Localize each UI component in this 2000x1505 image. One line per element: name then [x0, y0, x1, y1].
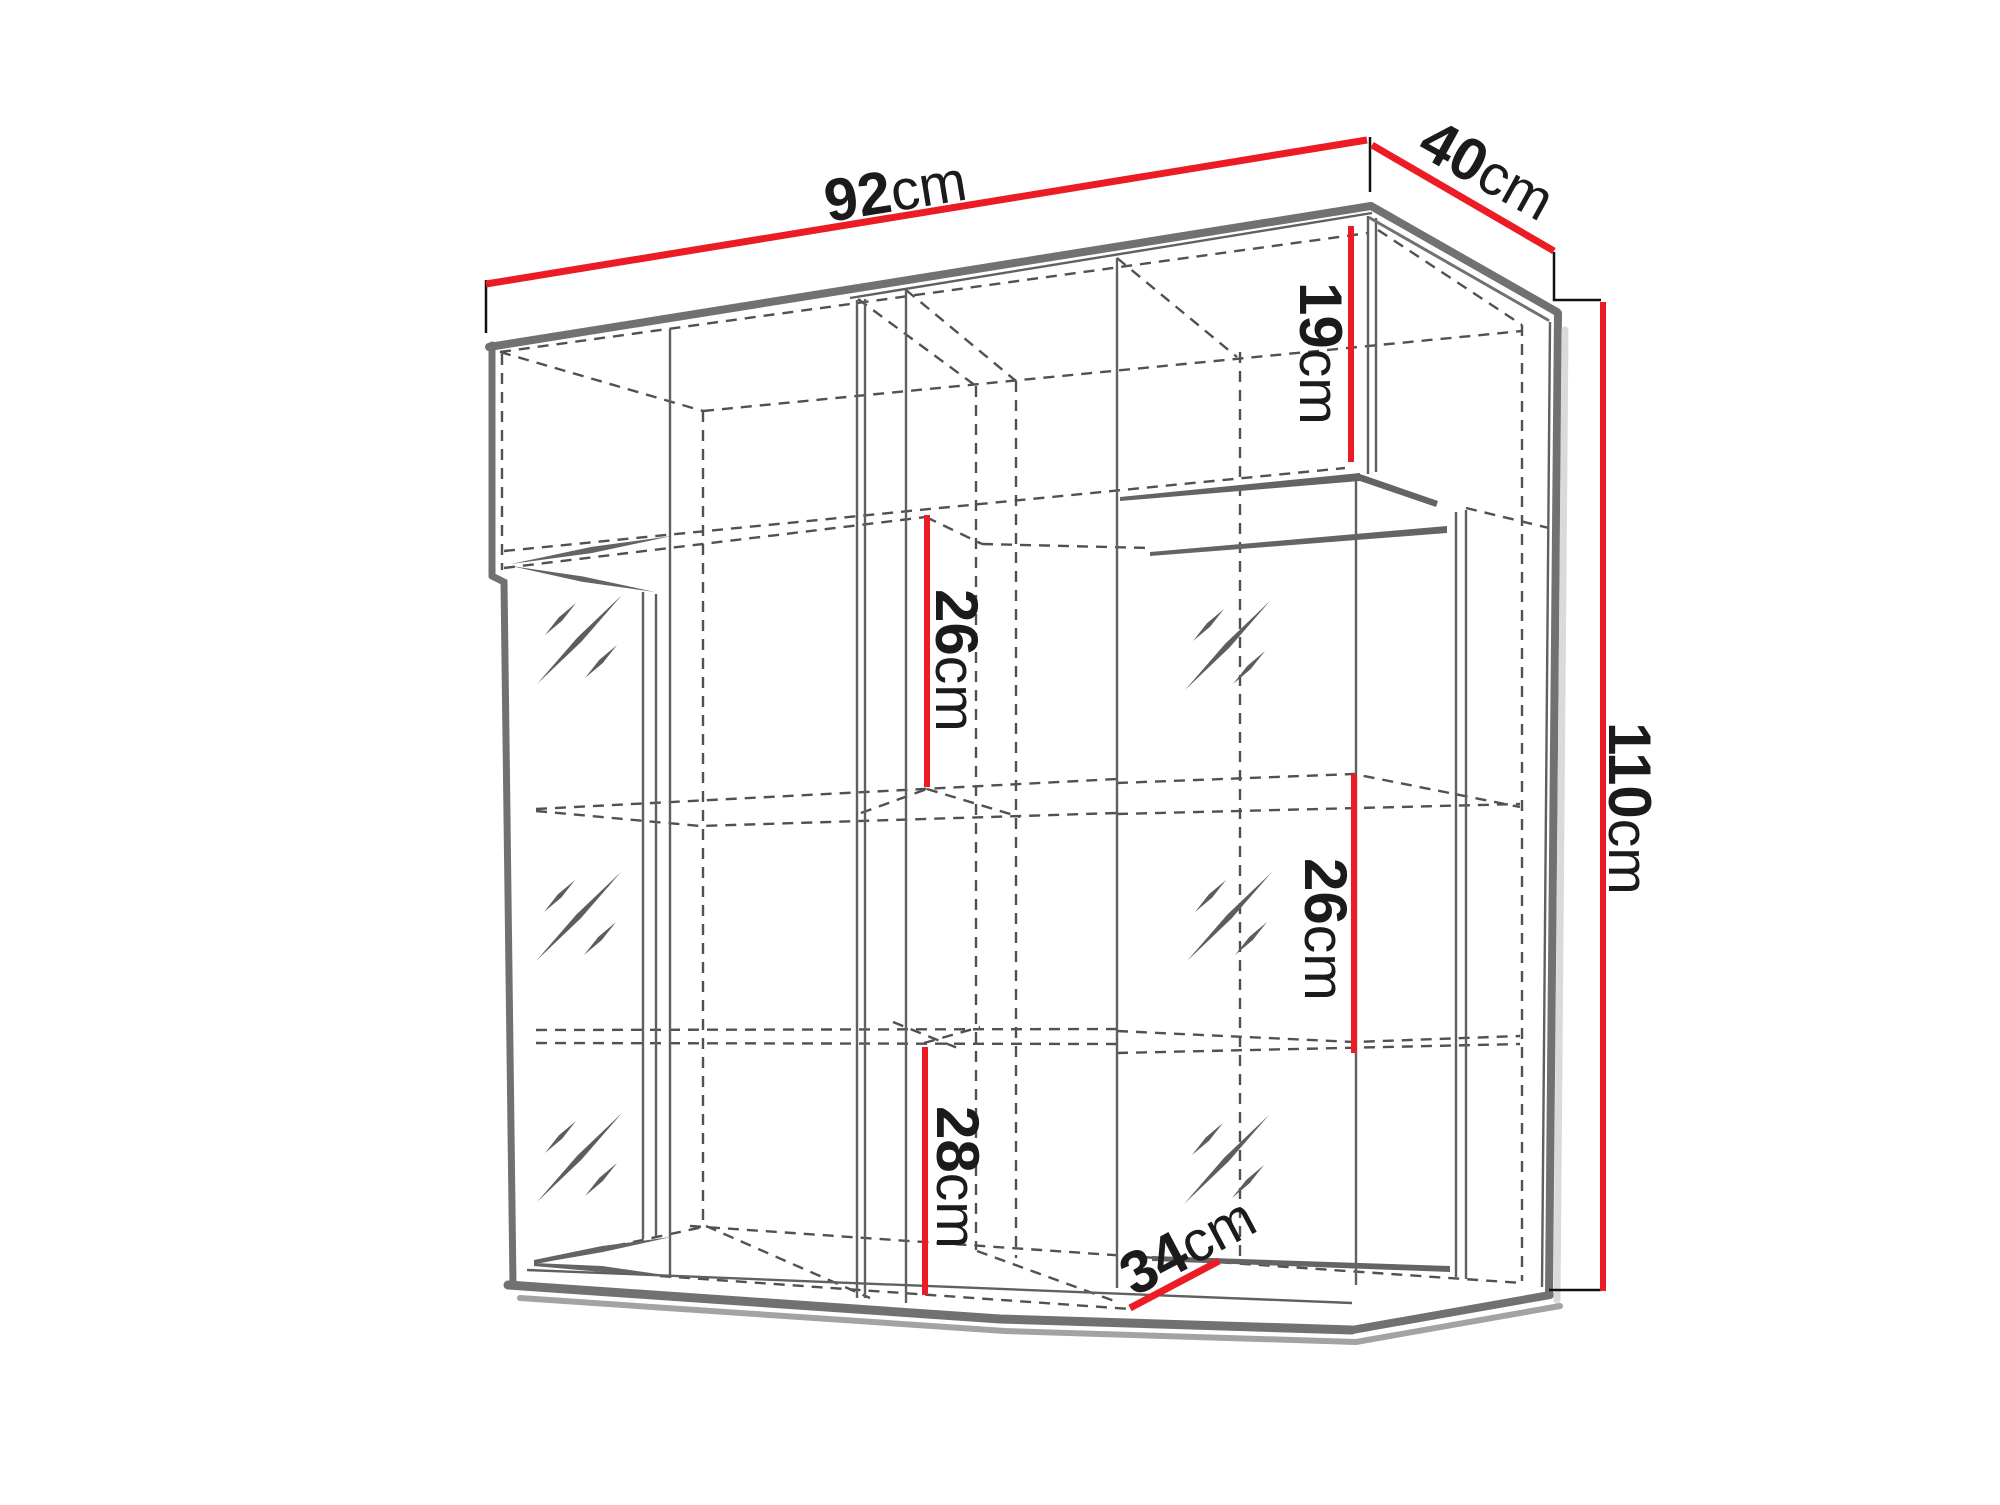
svg-text:19cm: 19cm [1287, 282, 1354, 425]
svg-text:26cm: 26cm [923, 589, 990, 732]
svg-text:110cm: 110cm [1596, 722, 1663, 895]
svg-text:28cm: 28cm [924, 1106, 991, 1249]
svg-text:26cm: 26cm [1292, 858, 1359, 1001]
